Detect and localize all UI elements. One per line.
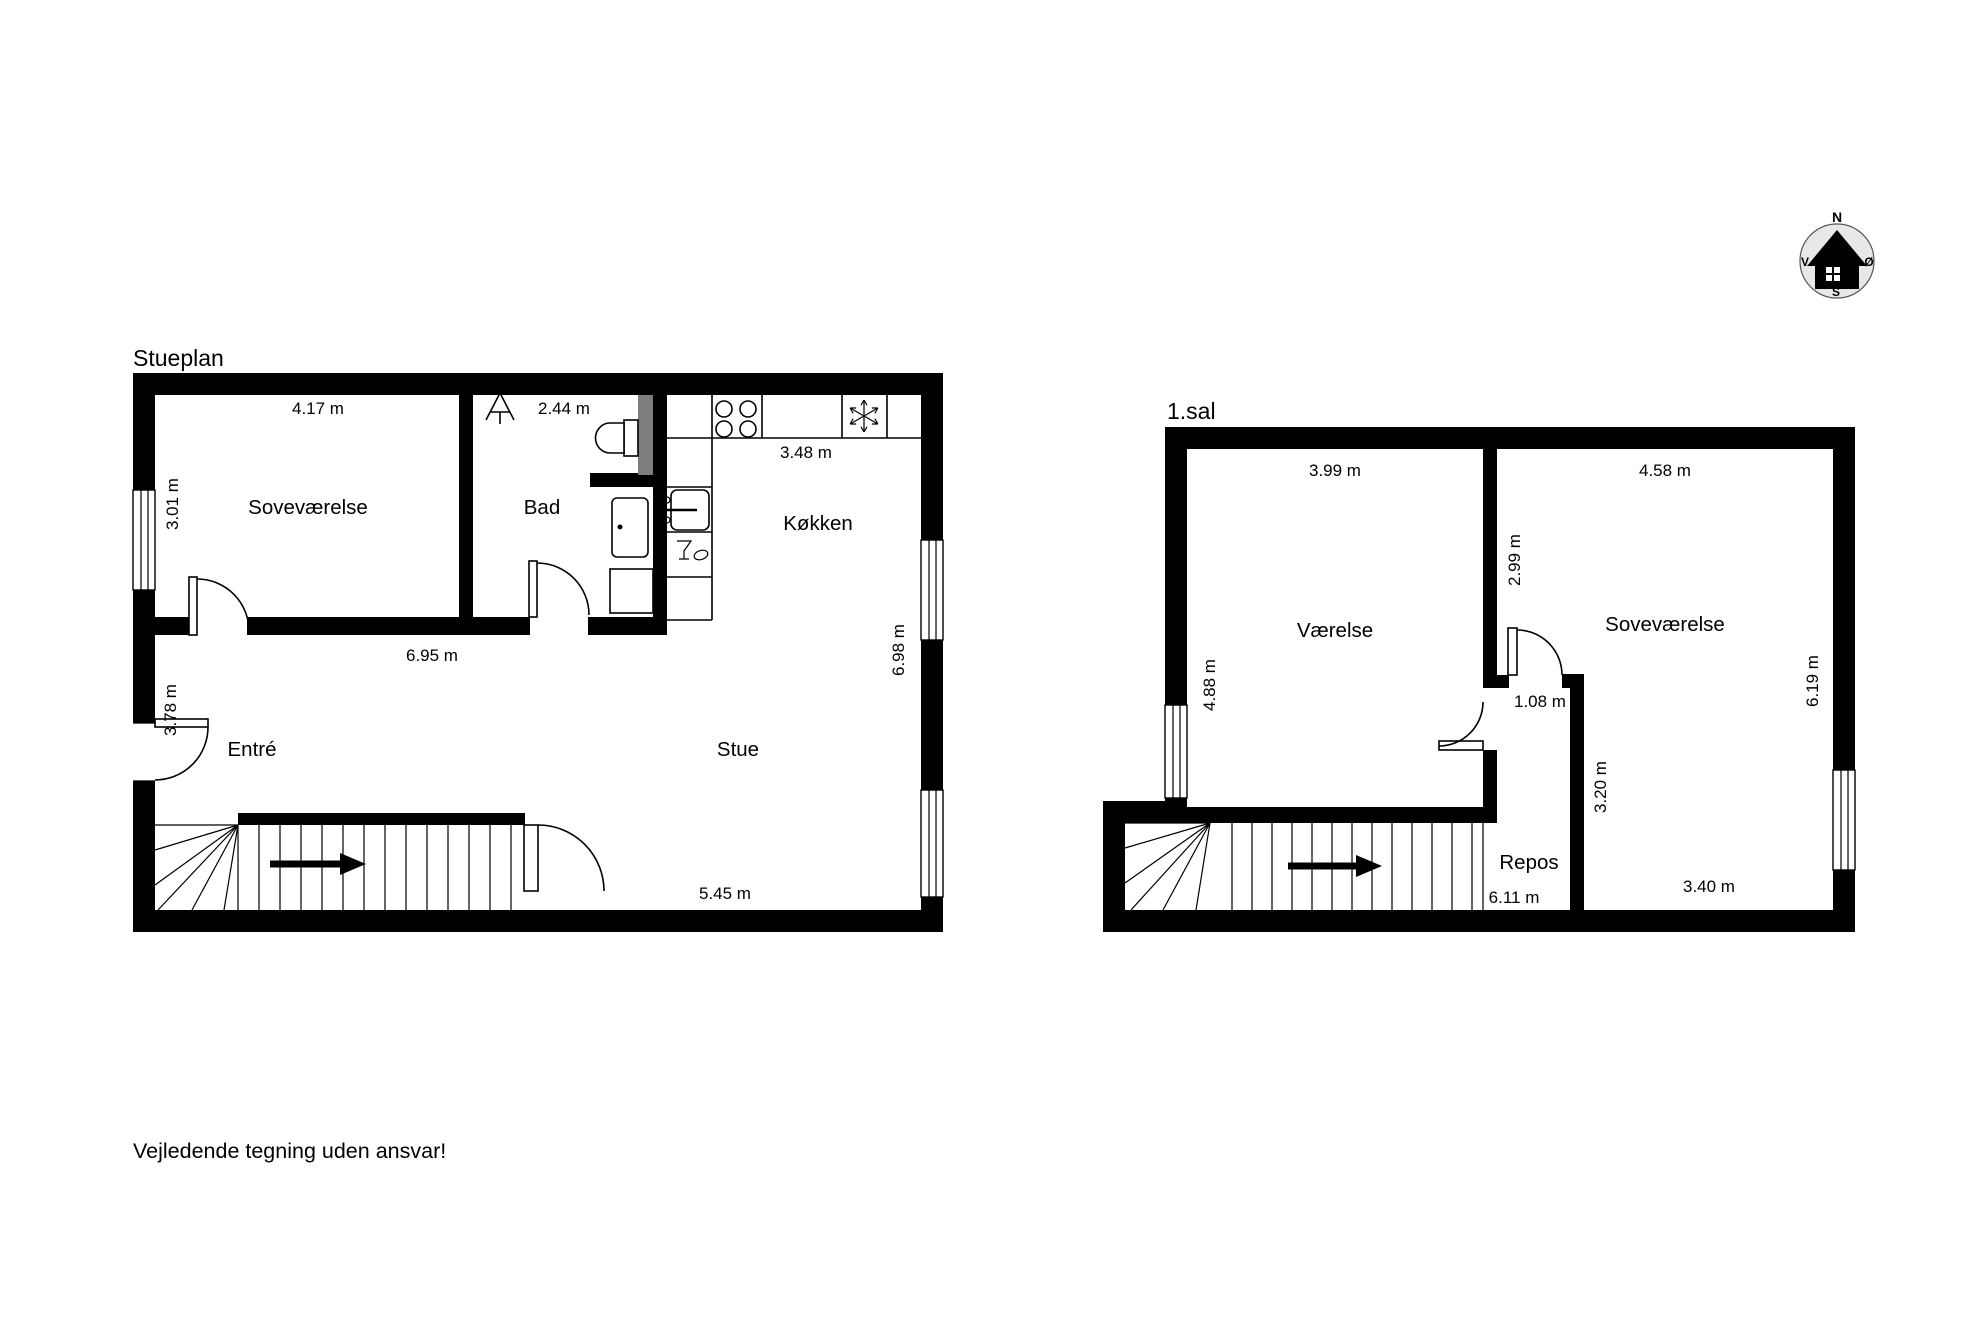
first-floor-plan: 1.sal (1103, 398, 1855, 932)
first-bedroom-door (1508, 628, 1562, 675)
label-first-bedroom: Soveværelse (1605, 613, 1725, 636)
dim-hall-height: 3.78 m (161, 684, 180, 736)
label-kitchen: Køkken (783, 512, 853, 535)
dim-landing-wall-height: 3.20 m (1591, 761, 1610, 813)
dim-bathroom-width: 2.44 m (538, 399, 590, 418)
kitchen-counter-top (667, 395, 921, 438)
dim-living-width: 5.45 m (699, 884, 751, 903)
compass-west-label: V (1801, 255, 1809, 269)
label-bathroom: Bad (524, 496, 560, 519)
stair-direction-arrow (270, 853, 366, 875)
stair-direction-arrow (1288, 855, 1382, 877)
room-window (1165, 705, 1187, 798)
ground-floor-stairs (155, 825, 511, 910)
first-bedroom-window (1833, 770, 1855, 870)
dim-bedroom-width: 4.17 m (292, 399, 344, 418)
shower-cabinet (612, 498, 648, 557)
disclaimer-text: Vejledende tegning uden ansvar! (133, 1139, 446, 1163)
compass-north-label: N (1832, 209, 1842, 225)
dim-stair-length: 6.11 m (1489, 888, 1540, 907)
label-hall: Entré (228, 738, 277, 761)
room-door (1439, 702, 1483, 750)
dim-first-bedroom-width: 4.58 m (1639, 461, 1691, 480)
kitchen-window (921, 540, 943, 640)
compass-east-label: Ø (1864, 255, 1873, 269)
dim-first-bedroom-bottom-width: 3.40 m (1683, 877, 1735, 896)
duct-shaft (638, 395, 653, 475)
dim-door-width: 1.08 m (1514, 692, 1566, 711)
bathroom-fixtures (486, 393, 653, 613)
bath-cabinet (610, 569, 653, 613)
label-landing: Repos (1499, 851, 1558, 874)
ground-floor-plan: Stueplan (133, 345, 943, 932)
dim-first-bedroom-height: 6.19 m (1803, 655, 1822, 707)
dishwasher-icon (677, 541, 709, 561)
dim-bedroom-height: 3.01 m (163, 478, 182, 530)
sink-icon (664, 490, 709, 530)
label-room: Værelse (1297, 619, 1373, 642)
first-floor-title: 1.sal (1167, 398, 1216, 424)
shower-icon (486, 393, 514, 424)
stove-icon (716, 401, 756, 437)
label-living-room: Stue (717, 738, 759, 761)
floorplan-canvas: N S V Ø Stueplan (0, 0, 1984, 1323)
dim-room-width: 3.99 m (1309, 461, 1361, 480)
ground-floor-title: Stueplan (133, 345, 224, 371)
living-room-door (524, 825, 604, 891)
dim-partition-height: 2.99 m (1505, 534, 1524, 586)
toilet-icon (596, 420, 639, 456)
bathroom-door (529, 561, 589, 617)
kitchen-fixtures (664, 395, 921, 620)
label-bedroom: Soveværelse (248, 496, 368, 519)
dim-living-height: 6.98 m (889, 624, 908, 676)
bedroom-window (133, 490, 155, 590)
compass: N S V Ø (1800, 209, 1874, 299)
living-room-window (921, 790, 943, 897)
dim-room-height: 4.88 m (1200, 659, 1219, 711)
freezer-icon (850, 400, 878, 432)
bedroom-door (189, 577, 249, 635)
stair-winders (1125, 823, 1210, 910)
stair-winders (155, 825, 238, 910)
compass-south-label: S (1832, 285, 1840, 299)
first-floor-stairs (1125, 823, 1483, 910)
dim-middle-width: 6.95 m (406, 646, 458, 665)
dim-kitchen-width: 3.48 m (780, 443, 832, 462)
